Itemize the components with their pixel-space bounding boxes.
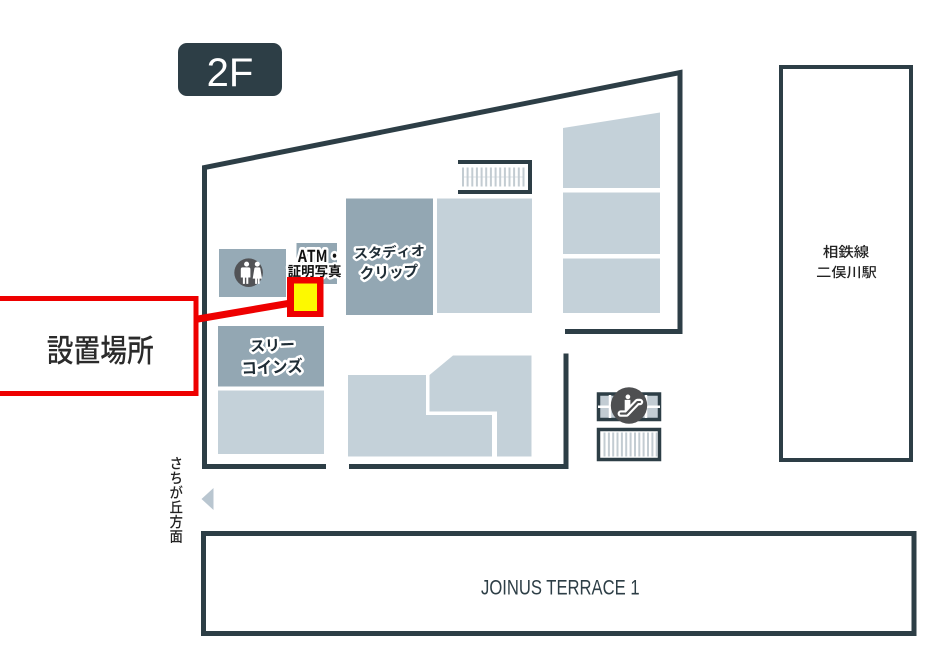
svg-text:2F: 2F	[207, 51, 254, 95]
svg-text:JOINUS TERRACE 1: JOINUS TERRACE 1	[481, 576, 640, 599]
